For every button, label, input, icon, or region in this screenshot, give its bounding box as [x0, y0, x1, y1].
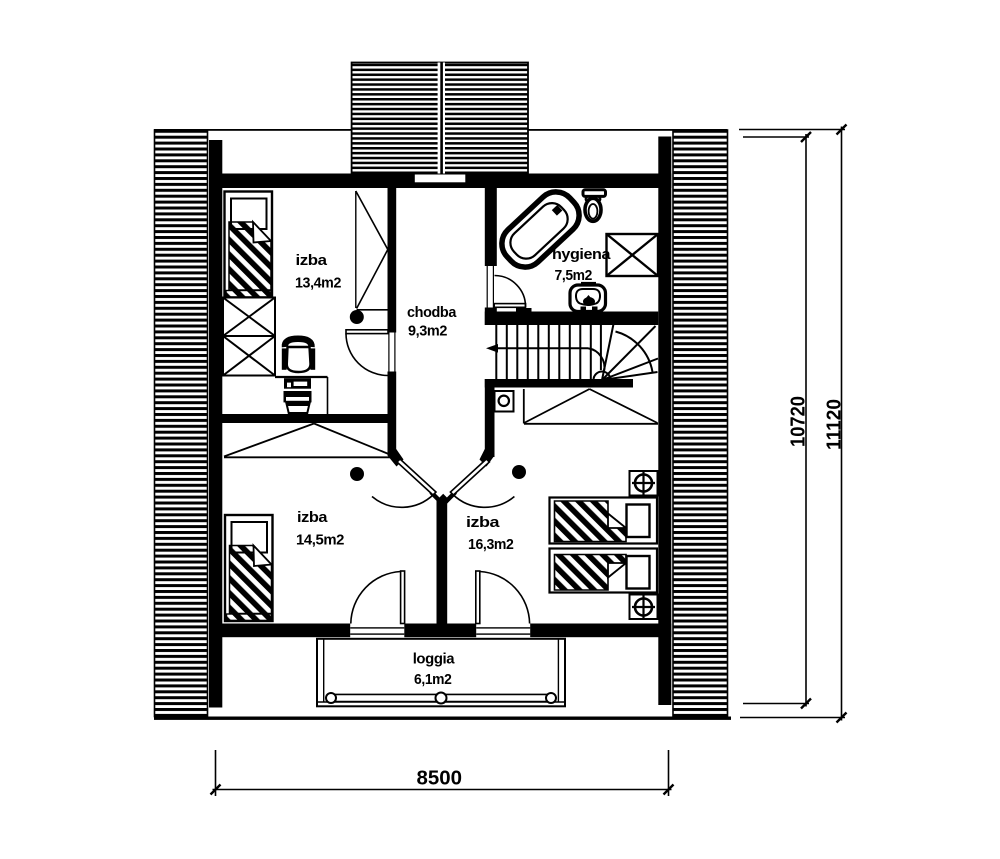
- svg-text:chodba: chodba: [407, 304, 457, 321]
- svg-text:10720: 10720: [788, 396, 810, 447]
- svg-text:izba: izba: [296, 252, 328, 269]
- svg-text:14,5m2: 14,5m2: [296, 532, 344, 549]
- svg-text:13,4m2: 13,4m2: [295, 275, 341, 292]
- svg-text:11120: 11120: [824, 399, 846, 450]
- svg-text:9,3m2: 9,3m2: [408, 323, 447, 340]
- svg-text:16,3m2: 16,3m2: [468, 536, 514, 553]
- svg-text:7,5m2: 7,5m2: [555, 267, 593, 284]
- svg-text:8500: 8500: [417, 768, 463, 790]
- svg-text:izba: izba: [297, 509, 328, 526]
- svg-text:loggia: loggia: [413, 651, 456, 668]
- svg-text:6,1m2: 6,1m2: [414, 671, 452, 688]
- svg-text:izba: izba: [466, 514, 500, 531]
- svg-text:hygiena: hygiena: [552, 246, 611, 263]
